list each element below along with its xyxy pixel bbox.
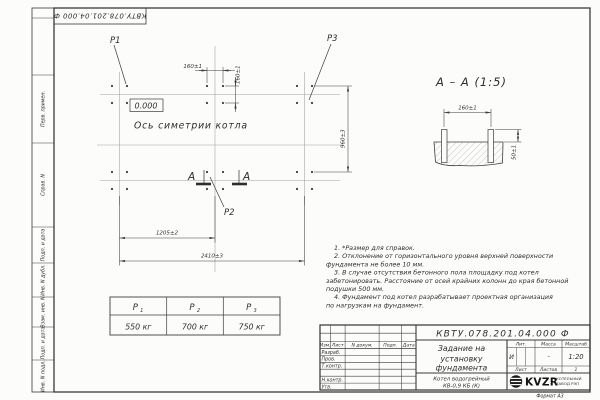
section-cut-marks <box>196 170 247 184</box>
lit-mass-scale-headers: Лит. Масса Масштаб <box>515 341 587 347</box>
product-name-line: Котел водогрейный <box>433 377 490 383</box>
title-block-designation: КВТУ.078.201.04.000 Ф <box>436 330 570 340</box>
document-title-line: Задание на <box>438 344 485 353</box>
product-name-line: КВ-0,9 КБ (К) <box>443 384 480 390</box>
plan-dimension-lines <box>120 67 353 266</box>
load-table-header-sub: 1 <box>140 308 143 314</box>
lit-header: Лит. <box>515 341 527 347</box>
load-point-label-p1: P1 <box>110 36 121 46</box>
mass-value: - <box>547 352 550 360</box>
load-point-label-p2: P2 <box>224 208 235 218</box>
document-title: Задание на установку фундамента <box>436 344 488 373</box>
load-table-value: 700 кг <box>182 323 209 332</box>
sheet-label: Лист <box>514 367 527 373</box>
title-block-row-labels: Разраб. Пров. Т.контр. Н.контр. Утв. <box>322 350 343 391</box>
note-line: подушки 500 мм. <box>326 285 384 293</box>
dim-row-spacing: 960±3 <box>341 129 347 148</box>
dim-section-width: 160±1 <box>458 106 477 112</box>
margin-labels: Перв. примен. Справ. N Подп. и дата Инв.… <box>41 91 47 392</box>
format-note: Формат А3 <box>536 394 563 400</box>
kvzr-logo: KVZR КОТЕЛЬНЫЙ ЗАВОД РЭП <box>510 375 582 388</box>
scale-value: 1:20 <box>568 353 583 361</box>
drawing-canvas: Перв. примен. Справ. N Подп. и дата Инв.… <box>0 0 600 400</box>
row-label: Разраб. <box>322 350 341 356</box>
margin-label: Подп. и дата <box>41 229 47 262</box>
note-line: по нагрузкам на фундамент. <box>326 301 424 309</box>
margin-label: Инв. N дубл. <box>41 264 47 295</box>
load-table-header-sub: 2 <box>197 308 200 314</box>
anchor-bolt-left <box>442 130 448 163</box>
title-block: КВТУ.078.201.04.000 Ф Изм. Лист N докум.… <box>320 325 590 390</box>
sheets-label: Листов <box>539 367 557 373</box>
technical-notes: 1. *Размер для справок. 2. Отклонение от… <box>326 244 568 309</box>
col-header: Подп. <box>383 343 397 349</box>
document-title-line: установку <box>439 355 482 364</box>
note-line: 1. *Размер для справок. <box>334 244 415 252</box>
symmetry-axis-caption: Ось симетрии котла <box>134 121 248 132</box>
margin-label: Взам. инв. N <box>41 296 47 328</box>
top-designation-box: КВТУ.078.201.04.000 Ф <box>54 8 147 24</box>
margin-label: Справ. N <box>41 174 47 196</box>
section-view: А – А (1:5) 160±1 50±1 <box>434 75 522 166</box>
rotated-designation: КВТУ.078.201.04.000 Ф <box>54 12 147 20</box>
note-line: забетонировать. Расстояние от осей крайн… <box>326 277 568 285</box>
scale-header: Масштаб <box>565 341 587 347</box>
col-header: Дата <box>402 343 415 349</box>
anchor-bolt-right <box>488 130 494 163</box>
row-label: Утв. <box>322 384 332 390</box>
load-table-header: P <box>189 303 195 313</box>
load-table-header-sub: 3 <box>254 308 257 314</box>
col-header: N докум. <box>351 343 372 349</box>
row-label: Н.контр. <box>322 378 343 384</box>
sheets-value: 1 <box>575 367 578 373</box>
mass-header: Масса <box>541 341 556 347</box>
margin-label: Перв. примен. <box>41 91 47 127</box>
document-title-line: фундамента <box>436 364 488 373</box>
kvzr-logo-subtext: ЗАВОД РЭП <box>556 381 579 386</box>
row-label: Т.контр. <box>322 364 343 370</box>
section-letter-left: А <box>187 171 195 183</box>
col-header: Лист <box>331 343 344 349</box>
kvzr-logo-text: KVZR <box>525 377 558 389</box>
row-label: Пров. <box>322 357 336 363</box>
plan-view: P1 P3 P2 0.000 Ось симетрии котла А А <box>97 34 352 272</box>
note-line: 4. Фундамент под котел разрабатывает про… <box>334 293 553 301</box>
load-table-value: 750 кг <box>239 323 266 332</box>
dim-bolt-spacing-h: 160±1 <box>183 64 202 70</box>
section-letter-right: А <box>242 171 250 183</box>
sheet-count-row: Лист Листов 1 <box>514 367 577 373</box>
load-table-header: P <box>133 303 139 313</box>
section-view-title: А – А (1:5) <box>435 75 507 89</box>
dim-total-length: 2410±3 <box>201 254 224 260</box>
note-line: фундамента не более 10 мм. <box>326 260 424 268</box>
note-line: 3. В случае отсутствия бетонного пола пл… <box>334 269 539 277</box>
margin-label: Инв. N подл. <box>41 360 47 392</box>
load-point-label-p3: P3 <box>327 34 338 44</box>
note-line: 2. Отклонение от горизонтального уровня … <box>334 252 553 260</box>
margin-label: Подп. и дата <box>41 327 47 360</box>
load-table: P 1 P 2 P 3 550 кг 700 кг 750 кг <box>110 297 280 335</box>
elevation-value: 0.000 <box>135 102 158 111</box>
section-dimension-lines <box>444 109 522 142</box>
dim-section-height: 50±1 <box>512 145 518 160</box>
title-block-col-headers: Изм. Лист N докум. Подп. Дата <box>320 343 415 349</box>
load-table-header: P <box>246 303 252 313</box>
product-name: Котел водогрейный КВ-0,9 КБ (К) <box>433 377 490 390</box>
dim-half-length: 1205±2 <box>156 231 179 237</box>
lit-value: И <box>509 353 514 361</box>
col-header: Изм. <box>320 343 331 349</box>
drawing-sheet: Перв. примен. Справ. N Подп. и дата Инв.… <box>0 0 600 400</box>
dim-bolt-spacing-v: 160±1 <box>236 65 242 84</box>
load-table-value: 550 кг <box>125 323 152 332</box>
